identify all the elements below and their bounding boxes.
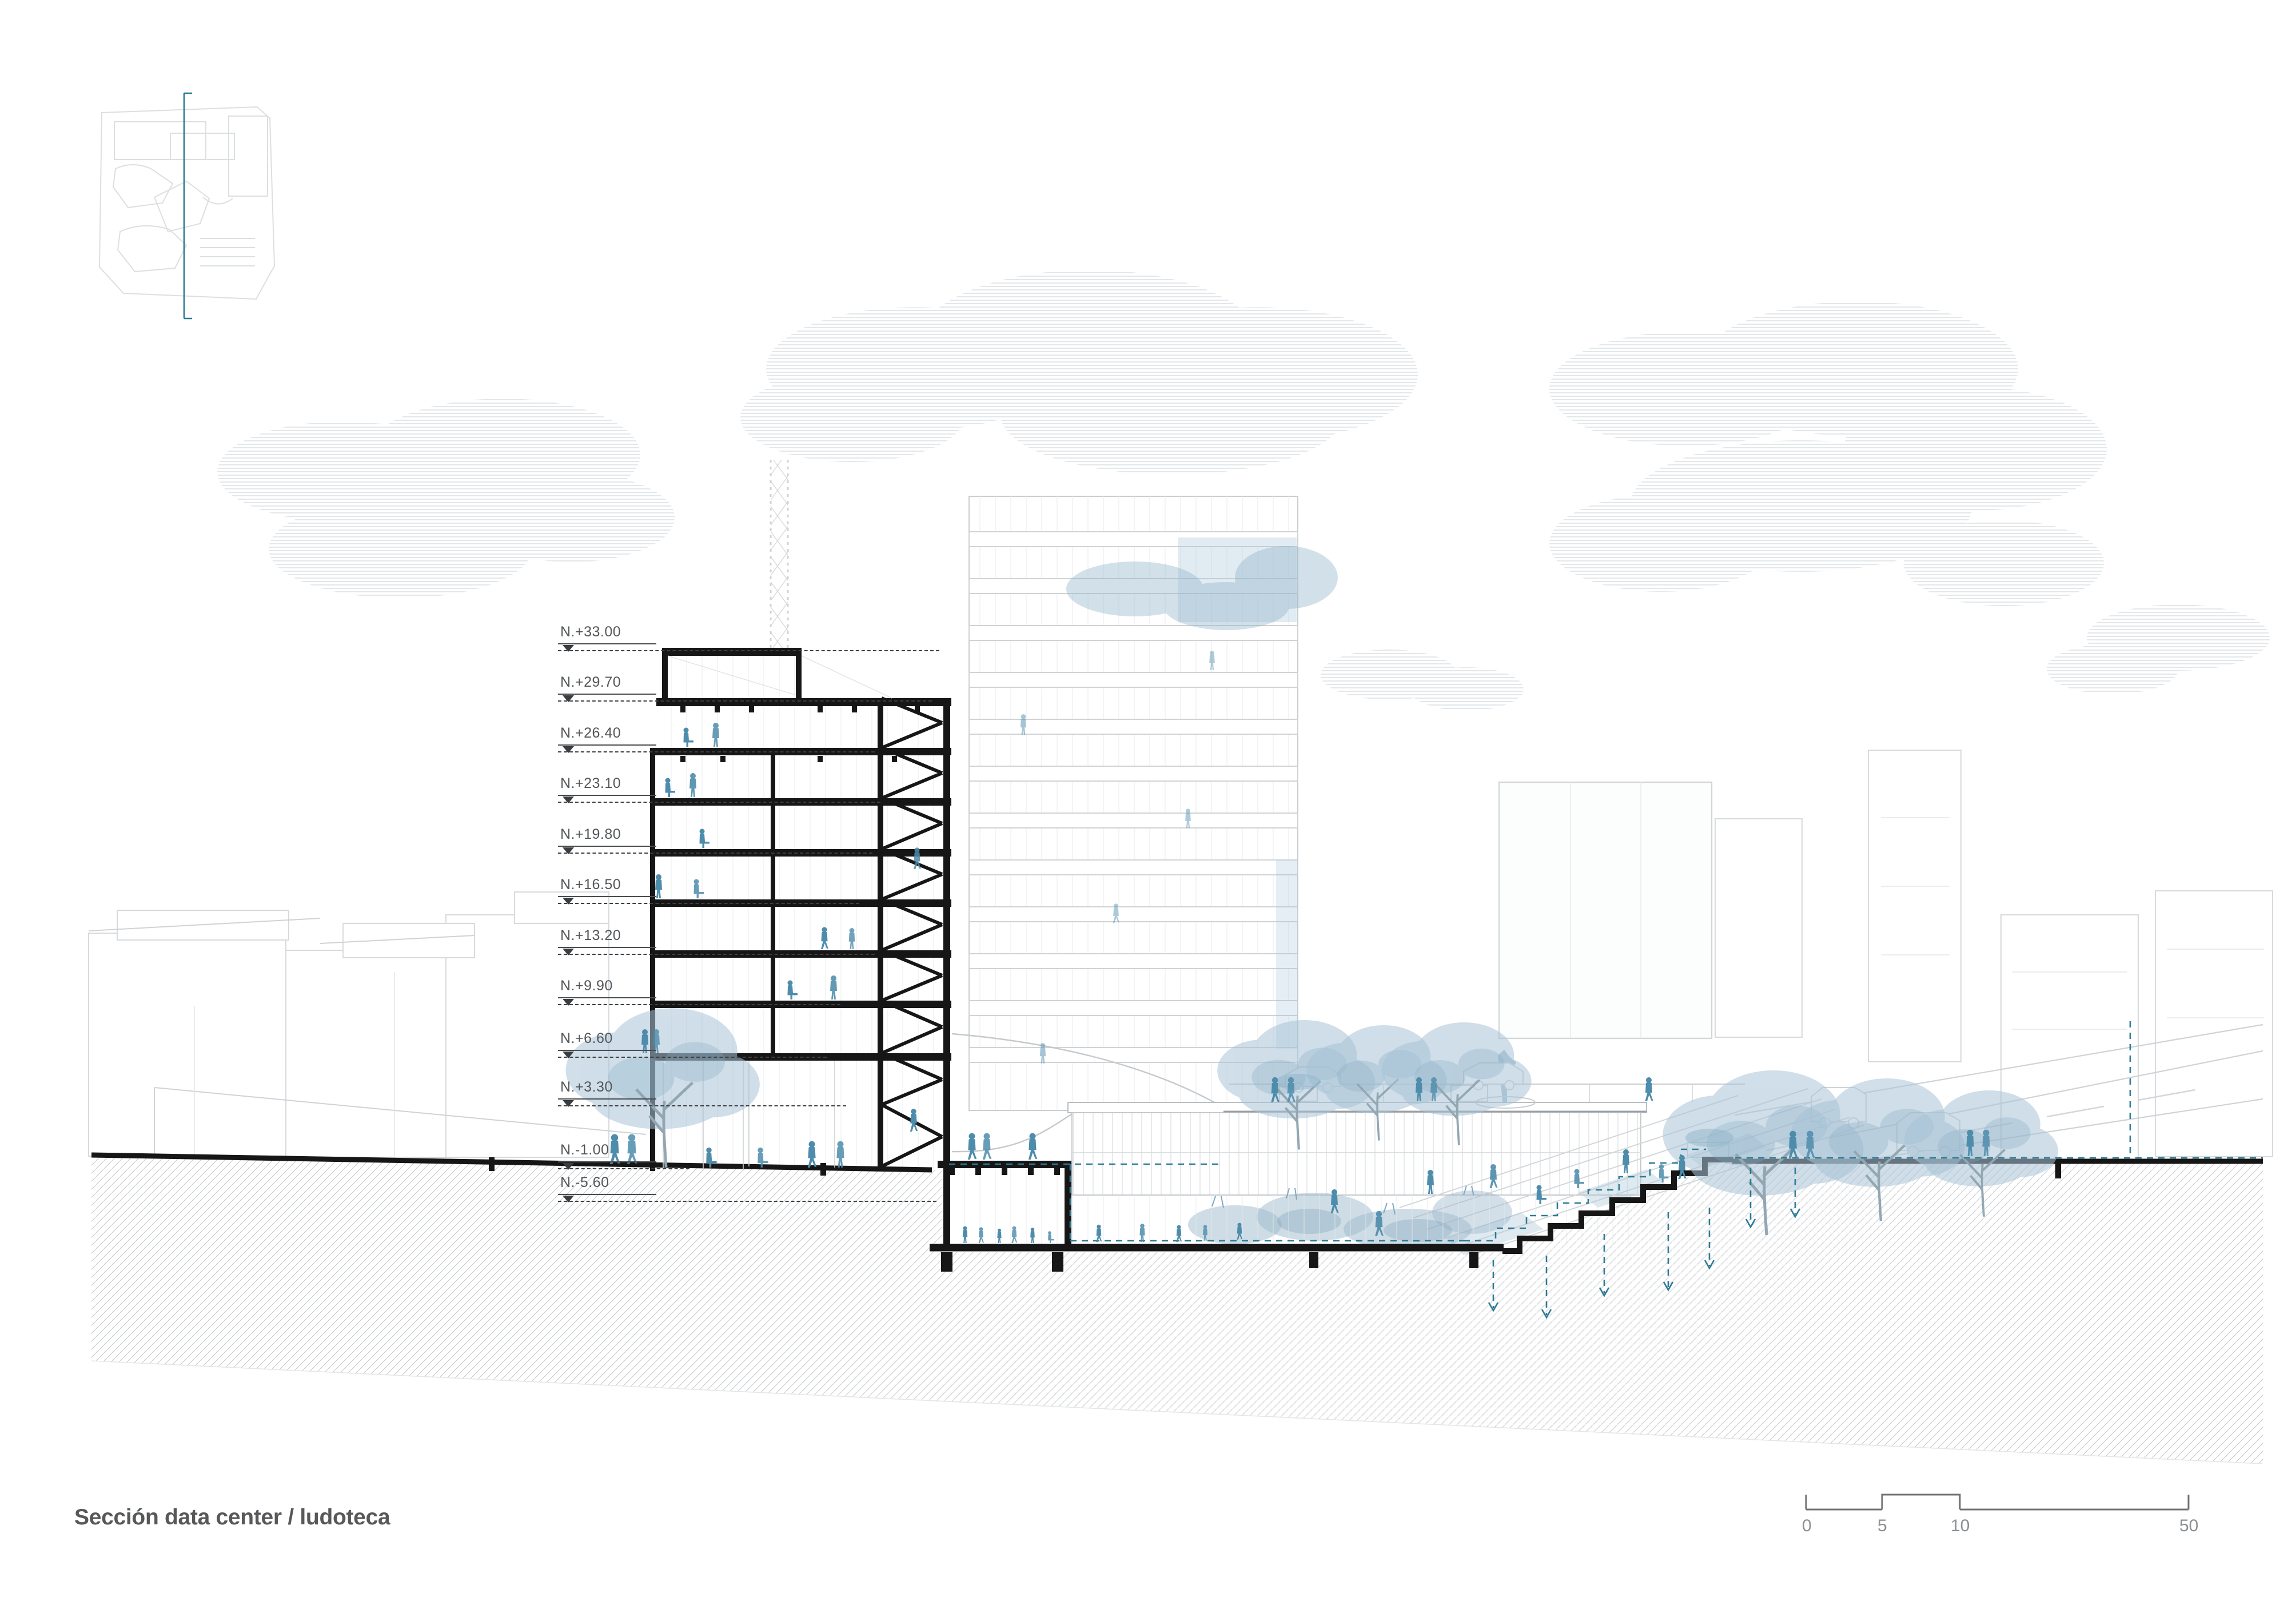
level-dash	[558, 954, 875, 955]
level-label: N.+26.40	[560, 726, 621, 740]
level-dash	[558, 751, 875, 752]
level-label: N.+33.00	[560, 625, 621, 639]
level-dash	[558, 853, 872, 854]
section-drawing-sheet: N.+33.00 N.+29.70 N.+26.40 N.+23.10 N.+1…	[0, 0, 2296, 1621]
level-dash	[558, 650, 939, 651]
scale-tick-10: 10	[1951, 1516, 1970, 1536]
drawing-title: Sección data center / ludoteca	[74, 1505, 390, 1530]
level-label: N.+19.80	[560, 827, 621, 842]
level-label: N.+6.60	[560, 1031, 613, 1046]
scale-bar-graphic	[1804, 1487, 2199, 1514]
level-dash	[558, 1004, 840, 1005]
background-block-center	[1499, 782, 1712, 1038]
level-label: N.+9.90	[560, 979, 613, 993]
scale-tick-5: 5	[1878, 1516, 1887, 1536]
section-scene	[0, 0, 2296, 1621]
antenna-mast	[771, 460, 788, 648]
level-dash	[558, 802, 880, 803]
level-dash	[558, 1201, 936, 1202]
level-label: N.+29.70	[560, 675, 621, 690]
level-label: N.+16.50	[560, 878, 621, 892]
section-cut-line	[184, 93, 192, 318]
level-dash	[558, 1105, 846, 1106]
level-label: N.+3.30	[560, 1080, 613, 1094]
level-label: N.-5.60	[560, 1176, 609, 1190]
level-dash	[558, 903, 859, 904]
level-label: N.+23.10	[560, 776, 621, 791]
scale-tick-0: 0	[1802, 1516, 1812, 1536]
site-key-map	[86, 89, 314, 329]
level-dash	[558, 1057, 827, 1058]
level-label: N.+13.20	[560, 929, 621, 943]
scale-bar: 0 5 10 50	[1804, 1487, 2199, 1550]
scale-tick-50: 50	[2179, 1516, 2198, 1536]
level-label: N.-1.00	[560, 1143, 609, 1157]
level-dash	[558, 1168, 689, 1169]
level-dash	[558, 700, 932, 702]
